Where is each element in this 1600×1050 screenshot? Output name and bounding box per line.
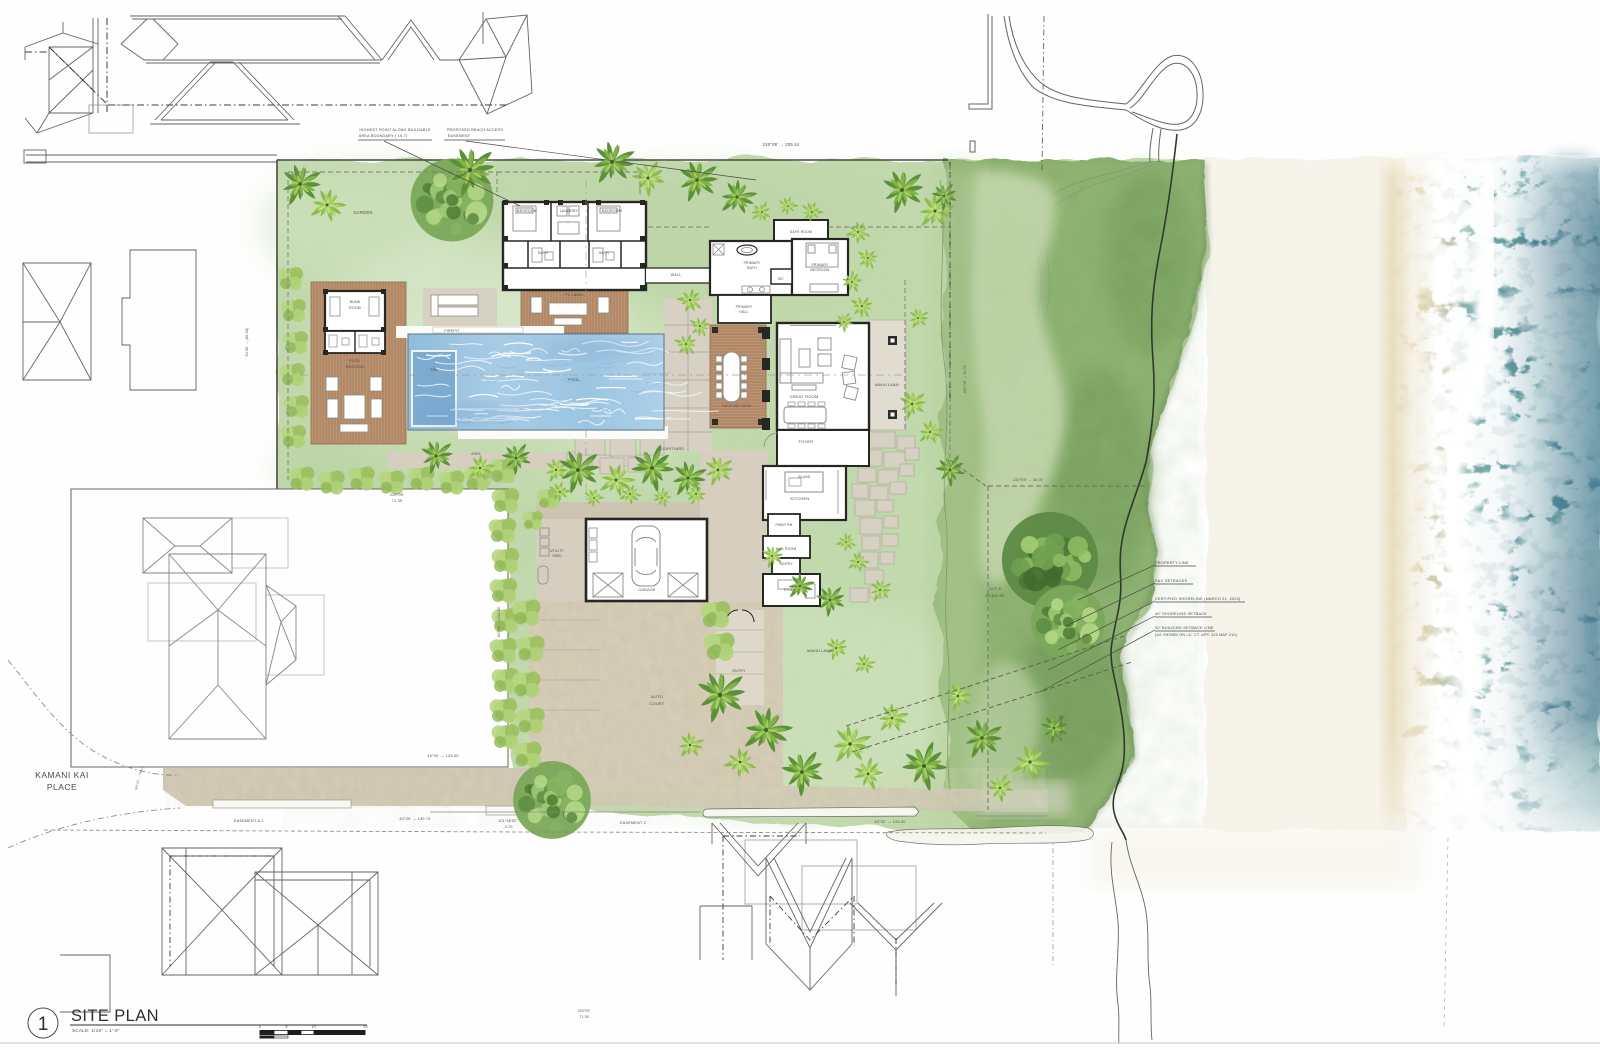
svg-text:220°09': 220°09': [578, 1009, 591, 1013]
svg-text:CERTIFIED SHORELINE (MARCH 21,: CERTIFIED SHORELINE (MARCH 21, 2023): [1155, 596, 1241, 601]
svg-text:EASEMENT: EASEMENT: [448, 134, 471, 138]
svg-text:FIREPIT: FIREPIT: [444, 329, 460, 333]
svg-text:TV LANAI: TV LANAI: [565, 293, 583, 297]
svg-text:PRIMARY: PRIMARY: [736, 305, 753, 309]
svg-text:AREA BOUNDARY ( 10.7): AREA BOUNDARY ( 10.7): [359, 134, 408, 138]
svg-text:SITE PLAN: SITE PLAN: [71, 1007, 159, 1025]
svg-text:KITCHEN: KITCHEN: [791, 496, 810, 501]
svg-text:220°09' → 30.00: 220°09' → 30.00: [963, 365, 967, 393]
svg-text:HALL: HALL: [739, 310, 748, 314]
svg-text:BATH: BATH: [538, 251, 548, 255]
svg-text:EASEMENT 2: EASEMENT 2: [620, 821, 646, 825]
svg-text:MAKAI LANAI: MAKAI LANAI: [875, 383, 899, 387]
svg-text:BATH: BATH: [599, 251, 609, 255]
svg-text:20': 20': [363, 1025, 368, 1029]
svg-text:GREAT ROOM: GREAT ROOM: [790, 394, 819, 399]
svg-text:AUTO: AUTO: [651, 694, 663, 699]
svg-text:UTILITY: UTILITY: [550, 549, 565, 553]
svg-text:71.35: 71.35: [579, 1015, 589, 1019]
svg-text:WALL: WALL: [671, 273, 681, 277]
svg-text:ISLAND: ISLAND: [798, 475, 811, 479]
svg-text:40°09' → 139.74: 40°09' → 139.74: [399, 817, 430, 821]
svg-text:5': 5': [286, 1025, 289, 1029]
svg-text:SPA: SPA: [430, 368, 438, 372]
svg-text:220°09' → 30.00: 220°09' → 30.00: [1013, 478, 1043, 482]
svg-text:-4.70: -4.70: [503, 825, 512, 829]
svg-text:MUD ROOM: MUD ROOM: [776, 547, 797, 551]
svg-text:94.50 → (66.65): 94.50 → (66.65): [245, 328, 249, 357]
svg-text:ENTRY: ENTRY: [732, 669, 746, 673]
svg-text:1: 1: [38, 1014, 49, 1035]
svg-text:71.35: 71.35: [392, 499, 403, 503]
svg-text:101°48'02": 101°48'02": [498, 819, 518, 823]
svg-text:POOL: POOL: [568, 377, 580, 382]
svg-text:BEDROOM: BEDROOM: [517, 209, 537, 213]
svg-text:GARAGE: GARAGE: [638, 588, 656, 592]
svg-text:PANTRY: PANTRY: [779, 562, 794, 566]
svg-text:LAUNDRY: LAUNDRY: [560, 209, 579, 213]
svg-text:40' SHORELINE SETBACK: 40' SHORELINE SETBACK: [1155, 611, 1207, 616]
svg-text:PROPERTY LINE: PROPERTY LINE: [1155, 560, 1189, 565]
svg-text:SCALE: 1/16" = 1'-0": SCALE: 1/16" = 1'-0": [72, 1028, 120, 1033]
svg-text:EASEMENT A-1: EASEMENT A-1: [234, 819, 264, 823]
svg-text:KAMANI KAI: KAMANI KAI: [35, 770, 89, 780]
svg-text:40°09' → 98.28: 40°09' → 98.28: [1059, 715, 1063, 741]
svg-text:0: 0: [259, 1025, 261, 1029]
svg-text:COURTYARD: COURTYARD: [660, 447, 684, 451]
svg-text:220°09' → 205.44: 220°09' → 205.44: [763, 142, 800, 147]
svg-text:HALE NUI LANAI: HALE NUI LANAI: [722, 404, 751, 408]
svg-text:SAFE ROOM: SAFE ROOM: [790, 230, 812, 234]
svg-text:YARD: YARD: [552, 554, 562, 558]
svg-text:PLACE: PLACE: [47, 782, 77, 792]
svg-text:36,301 SF: 36,301 SF: [985, 594, 1005, 598]
svg-text:(AS SHOWN ON LD. CT. APP. 323: (AS SHOWN ON LD. CT. APP. 323 MAP 210): [1155, 633, 1237, 637]
svg-text:FOYER: FOYER: [799, 439, 814, 444]
svg-text:BEDROOM: BEDROOM: [602, 209, 622, 213]
svg-text:30' BUILDING SETBACK LINE: 30' BUILDING SETBACK LINE: [1155, 625, 1214, 630]
svg-text:POOL: POOL: [349, 359, 360, 363]
svg-text:PAVILION: PAVILION: [346, 365, 365, 369]
svg-text:PRIMARY: PRIMARY: [744, 261, 761, 265]
svg-text:40°02' → 103.00: 40°02' → 103.00: [874, 820, 905, 824]
svg-text:BEDROOM: BEDROOM: [811, 268, 830, 272]
svg-text:COURT: COURT: [649, 701, 665, 706]
svg-text:BUNK: BUNK: [350, 300, 361, 304]
svg-text:BATH: BATH: [747, 266, 757, 270]
svg-text:82°49' → 244.00: 82°49' → 244.00: [497, 607, 501, 637]
svg-text:PWDR RM: PWDR RM: [776, 523, 793, 527]
svg-text:220°09': 220°09': [390, 493, 404, 497]
svg-text:LOT 6: LOT 6: [989, 586, 1002, 591]
svg-text:WC: WC: [778, 277, 784, 281]
svg-text:E&C SETBACKS: E&C SETBACKS: [1155, 578, 1187, 583]
svg-text:HIGHEST POINT ALONG BUILDABLE: HIGHEST POINT ALONG BUILDABLE: [359, 128, 431, 132]
svg-text:MAKAI LAWN: MAKAI LAWN: [807, 649, 833, 653]
svg-text:40°00' → 103.00: 40°00' → 103.00: [427, 754, 458, 758]
svg-text:10': 10': [311, 1025, 316, 1029]
svg-text:ROOM: ROOM: [349, 306, 361, 310]
svg-text:AREA: AREA: [471, 452, 481, 456]
svg-text:PRIMARY: PRIMARY: [812, 263, 829, 267]
svg-text:PROPOSED BEACH ACCESS: PROPOSED BEACH ACCESS: [447, 128, 504, 132]
svg-text:STUDY: STUDY: [784, 588, 797, 592]
svg-text:GARDEN: GARDEN: [353, 210, 372, 215]
